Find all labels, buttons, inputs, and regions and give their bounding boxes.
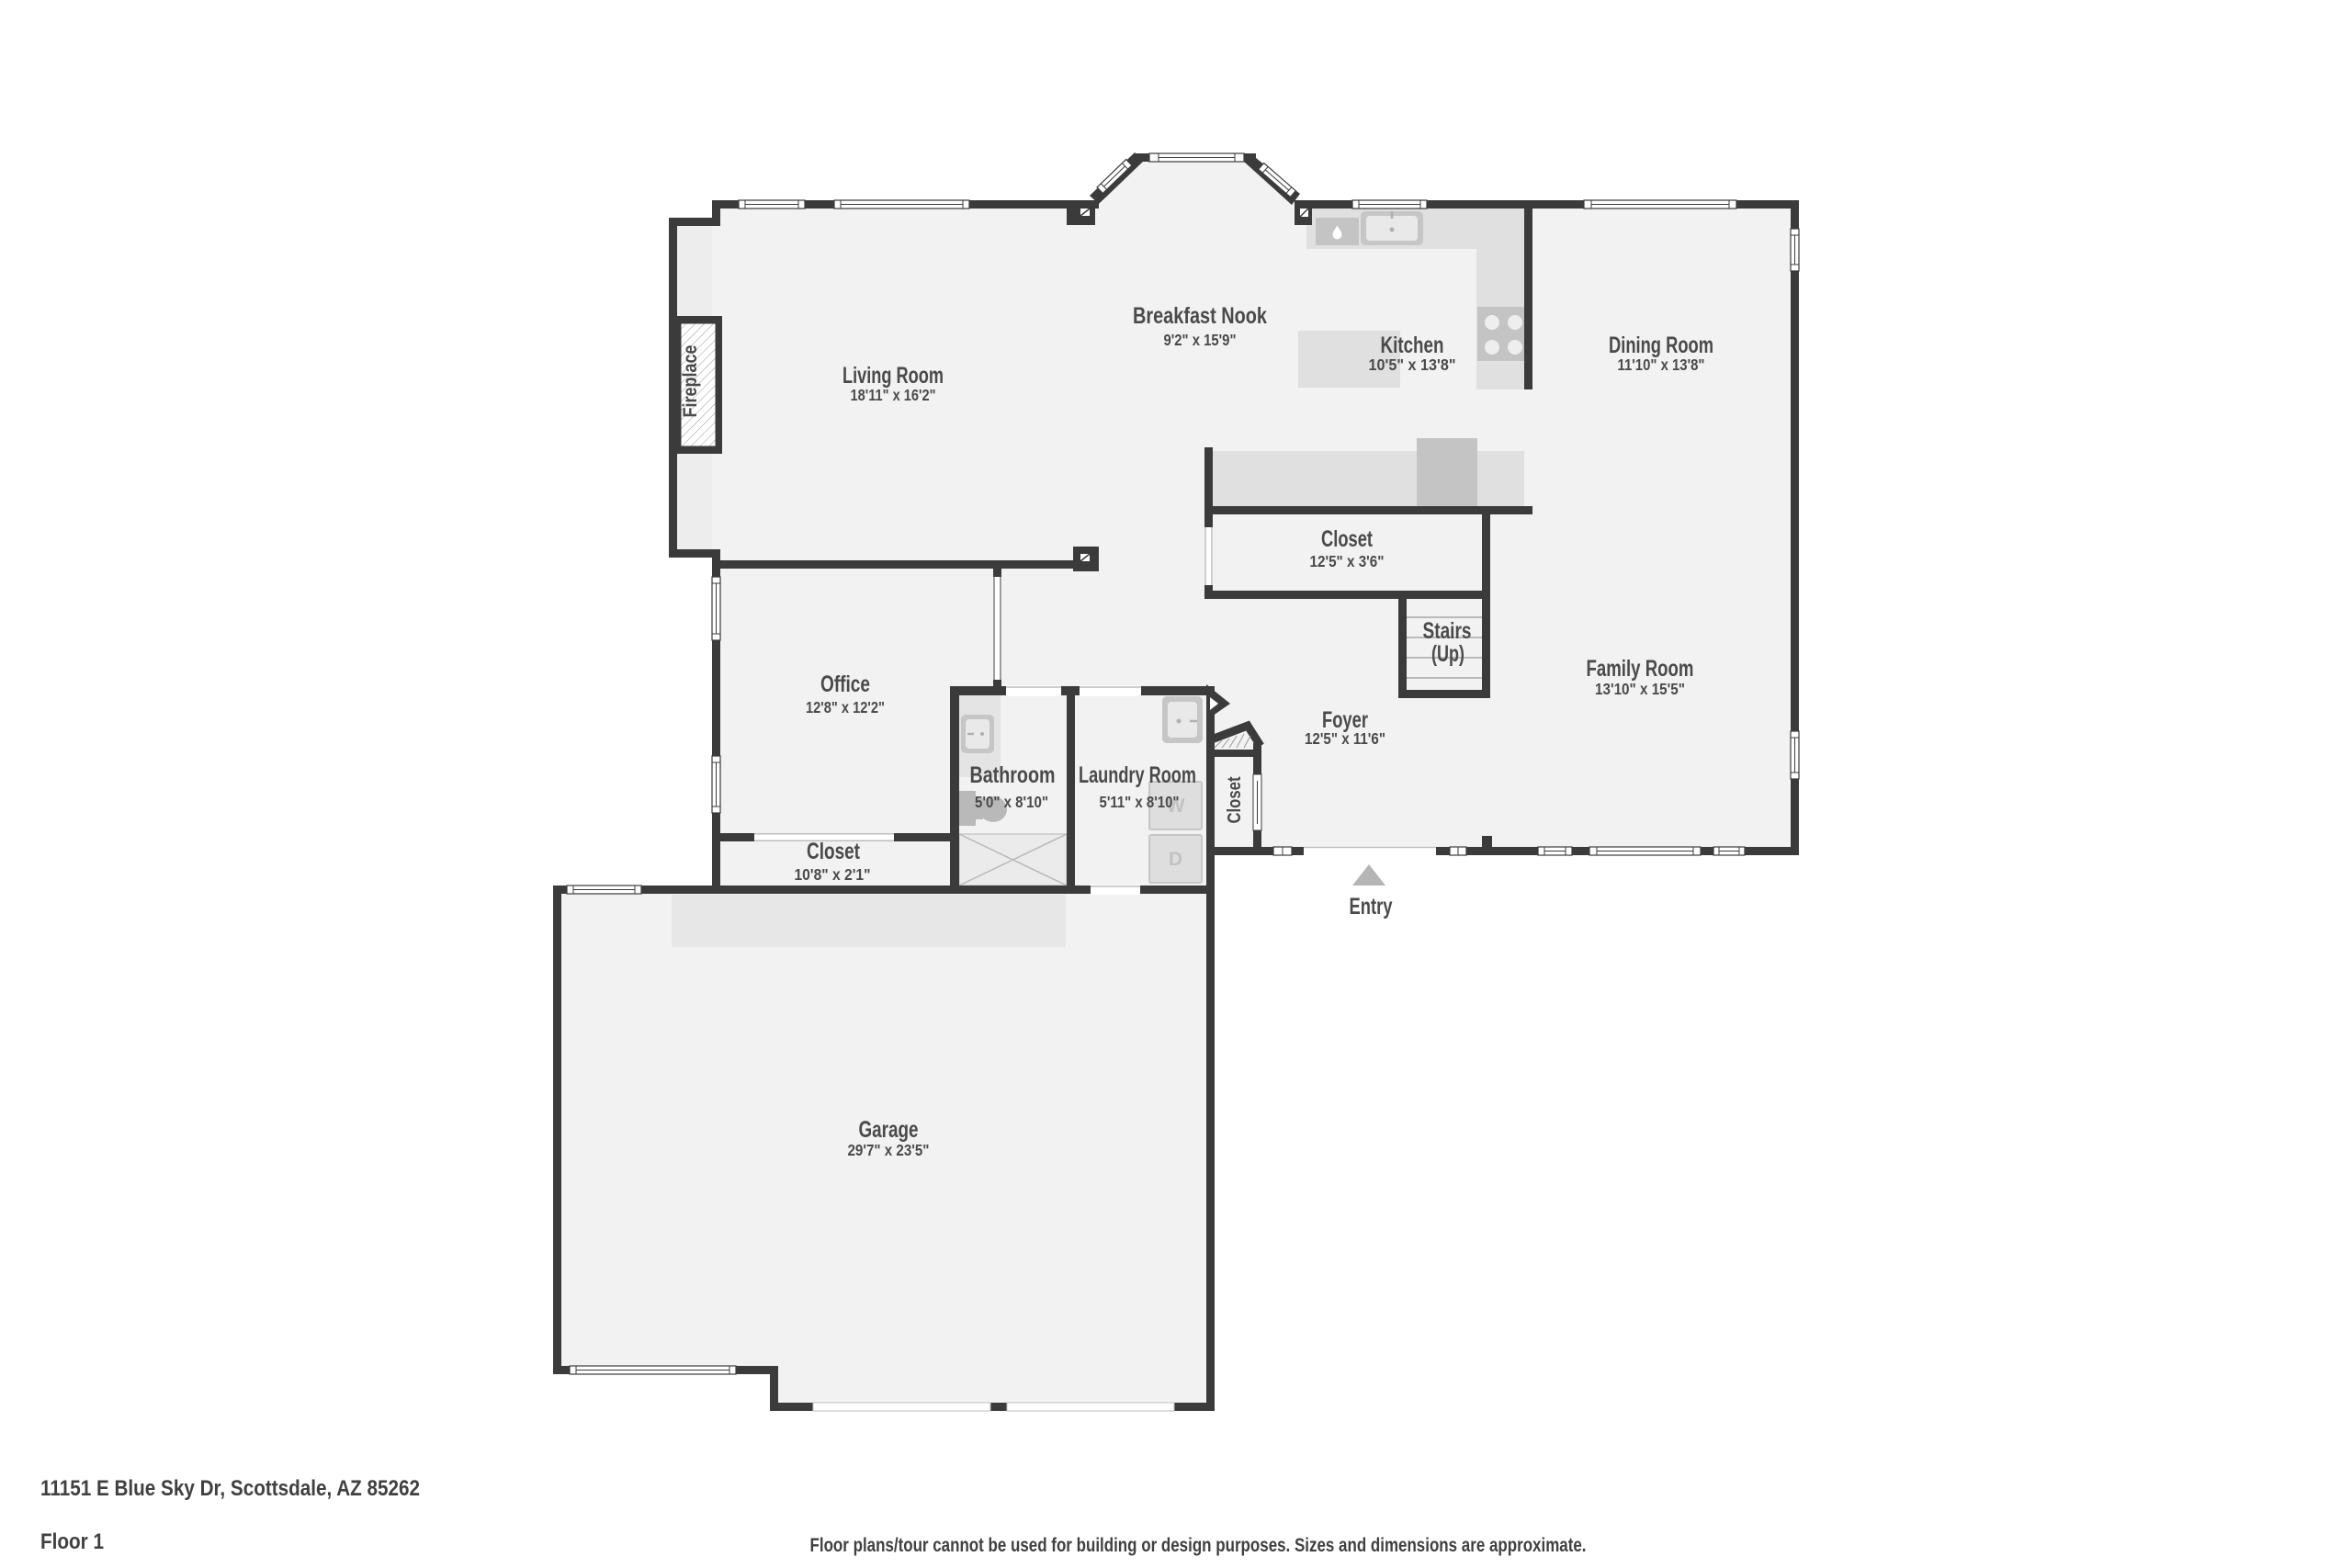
svg-text:Closet: Closet [807, 839, 861, 864]
svg-text:12'5" x 11'6": 12'5" x 11'6" [1305, 729, 1385, 748]
svg-text:11'10" x 13'8": 11'10" x 13'8" [1618, 355, 1705, 374]
svg-text:Bathroom: Bathroom [970, 762, 1056, 788]
svg-text:Closet: Closet [1225, 776, 1245, 823]
svg-text:Family Room: Family Room [1587, 656, 1694, 682]
svg-text:10'8" x 2'1": 10'8" x 2'1" [795, 865, 871, 884]
svg-text:Entry: Entry [1350, 894, 1393, 919]
svg-text:Floor plans/tour cannot be use: Floor plans/tour cannot be used for buil… [810, 1535, 1587, 1556]
svg-text:Living Room: Living Room [842, 363, 944, 389]
svg-text:Breakfast Nook: Breakfast Nook [1133, 303, 1267, 329]
svg-text:11151 E Blue Sky Dr, Scottsdal: 11151 E Blue Sky Dr, Scottsdale, AZ 8526… [40, 1476, 420, 1501]
svg-text:5'11" x 8'10": 5'11" x 8'10" [1100, 793, 1180, 811]
svg-text:(Up): (Up) [1431, 641, 1464, 667]
svg-text:Office: Office [820, 671, 870, 697]
svg-text:10'5" x 13'8": 10'5" x 13'8" [1369, 355, 1456, 374]
svg-text:13'10" x 15'5": 13'10" x 15'5" [1595, 680, 1685, 698]
svg-text:D: D [1169, 849, 1182, 870]
svg-text:18'11" x 16'2": 18'11" x 16'2" [851, 386, 936, 404]
svg-text:Laundry Room: Laundry Room [1079, 762, 1196, 788]
svg-text:29'7" x 23'5": 29'7" x 23'5" [848, 1141, 930, 1159]
svg-text:Fireplace: Fireplace [680, 345, 701, 418]
svg-text:Kitchen: Kitchen [1381, 333, 1444, 358]
svg-text:12'5" x 3'6": 12'5" x 3'6" [1310, 552, 1385, 570]
svg-text:Stairs: Stairs [1423, 618, 1472, 644]
svg-text:12'8" x 12'2": 12'8" x 12'2" [806, 698, 885, 716]
svg-text:5'0" x 8'10": 5'0" x 8'10" [975, 793, 1048, 811]
svg-text:Floor 1: Floor 1 [40, 1529, 104, 1554]
svg-text:Dining Room: Dining Room [1609, 333, 1713, 358]
svg-text:Garage: Garage [859, 1117, 919, 1143]
svg-text:9'2" x 15'9": 9'2" x 15'9" [1164, 331, 1237, 349]
svg-text:Closet: Closet [1321, 526, 1373, 552]
